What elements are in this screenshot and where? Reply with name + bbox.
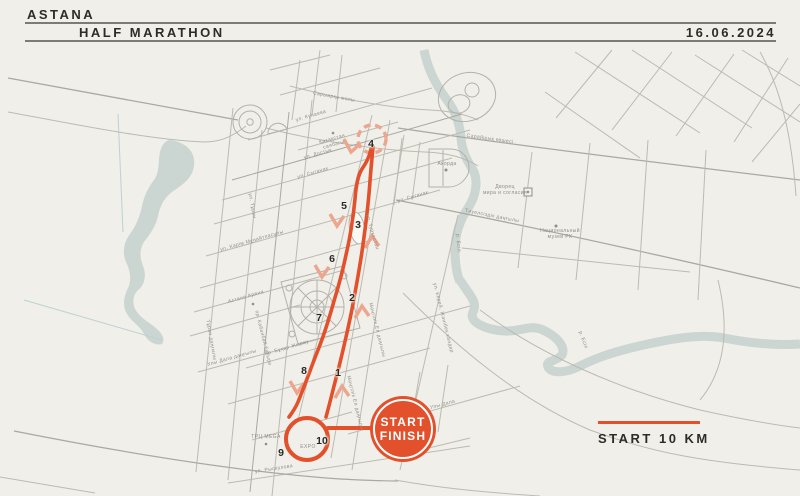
start-finish-badge: START FINISH — [370, 396, 436, 462]
marathon-route-poster: ул. КунаеваҚазақстан саябағыул. Достыкул… — [0, 0, 800, 496]
brand-line2: HALF MARATHON — [79, 25, 225, 40]
legend-route-swatch — [598, 421, 700, 424]
event-date: 16.06.2024 — [686, 25, 776, 40]
badge-start-label: START — [380, 415, 425, 429]
legend-label: START 10 KM — [598, 431, 710, 446]
header-rule-2 — [25, 40, 776, 42]
start-finish-bulb — [286, 418, 328, 460]
route-line — [286, 147, 373, 460]
header-rule-1 — [25, 22, 776, 24]
legend: START 10 KM — [598, 421, 710, 446]
route-outbound — [326, 147, 373, 417]
badge-finish-label: FINISH — [380, 429, 427, 443]
brand-line1: ASTANA — [27, 7, 95, 22]
landmarks — [233, 65, 558, 445]
water — [24, 50, 800, 372]
